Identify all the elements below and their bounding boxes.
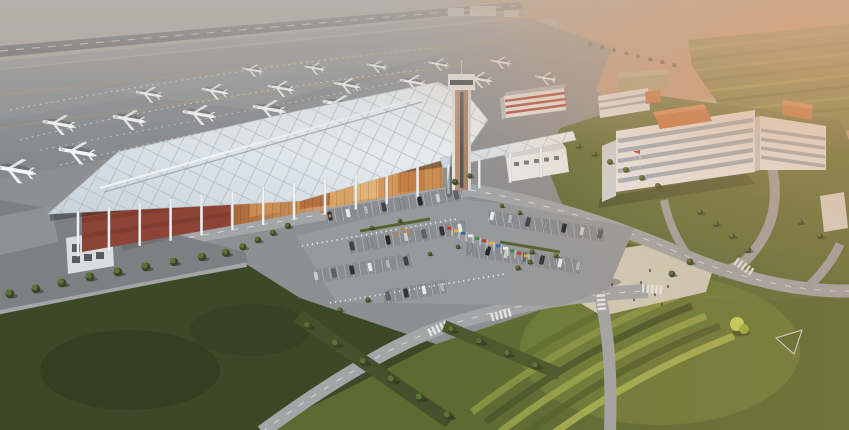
airport-rendering-canvas <box>0 0 849 430</box>
warm-side-tint <box>0 0 849 430</box>
airport-rendering <box>0 0 849 430</box>
